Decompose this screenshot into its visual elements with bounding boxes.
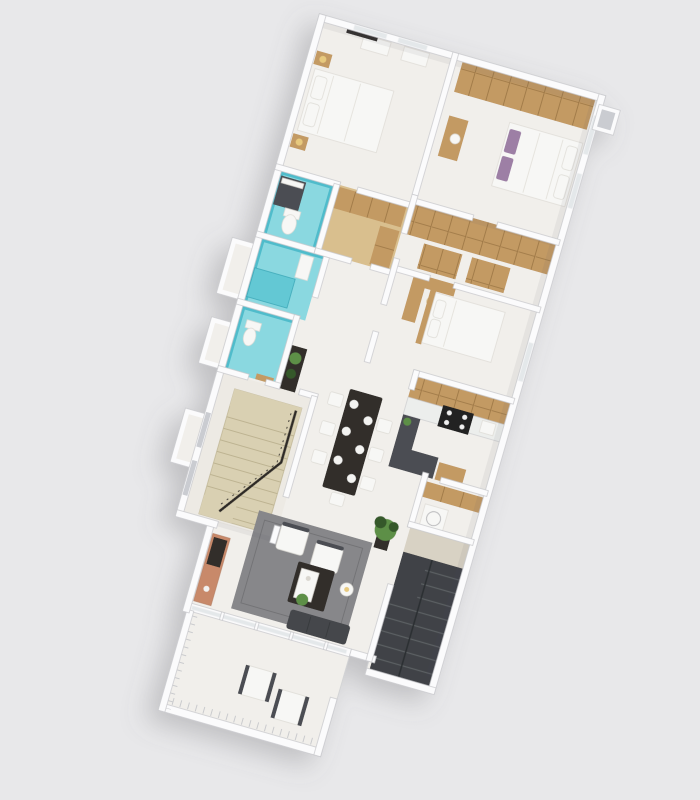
render-canvas [0, 0, 700, 800]
floor-plan-svg [0, 0, 700, 800]
